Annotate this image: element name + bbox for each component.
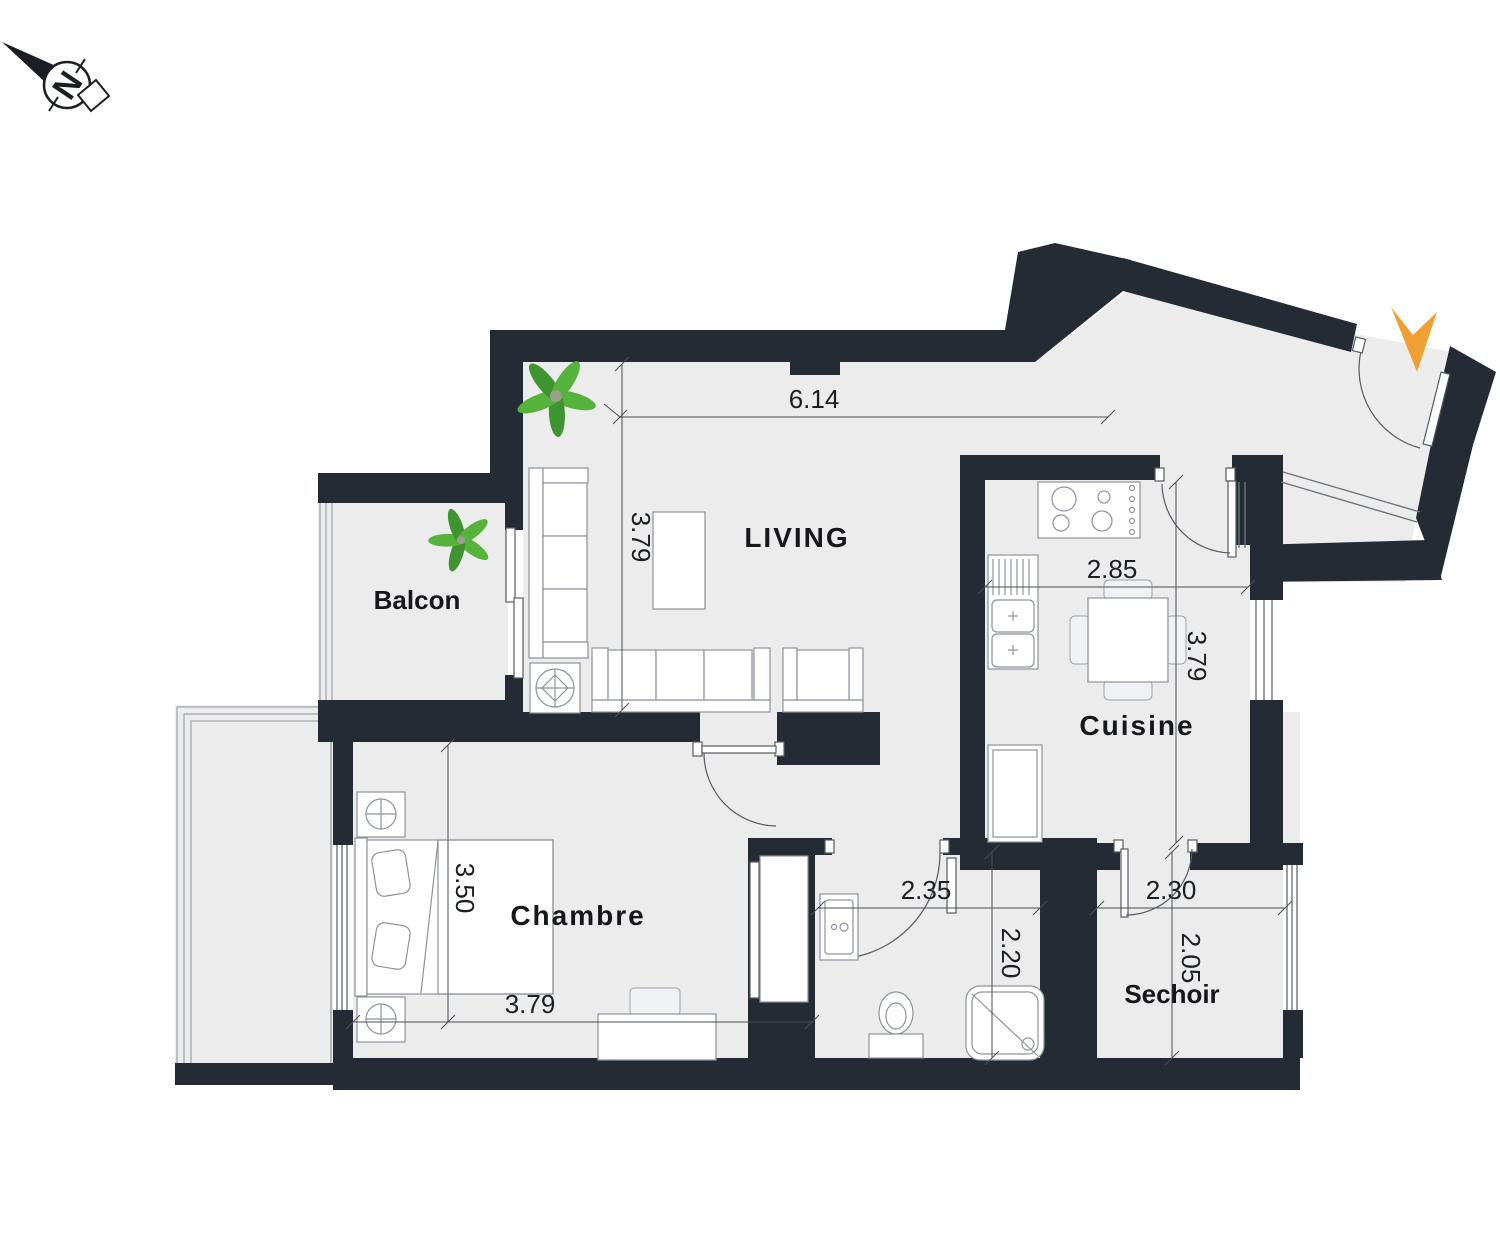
closet <box>750 856 808 1002</box>
wall-bottom <box>333 1058 1300 1090</box>
living-label: LIVING <box>744 522 849 553</box>
sofa-left <box>529 468 588 658</box>
shower <box>966 986 1044 1060</box>
balcon-label: Balcon <box>374 585 461 615</box>
stove <box>1038 482 1140 538</box>
balcon-sliding-door <box>506 528 523 678</box>
wall-bain-right <box>1040 855 1097 1058</box>
sechoir-right-window <box>1283 865 1303 1010</box>
floor-plan-page: 6.14 3.79 2.85 3.79 3.50 <box>0 0 1500 1258</box>
wall-living-bottom-b <box>777 712 880 765</box>
dim-bain-width-value: 2.35 <box>901 875 952 905</box>
wall-sechoir-right-b <box>1283 1010 1303 1058</box>
wall-kitchen-bottom-a <box>960 843 1120 870</box>
dim-cuisine-width-value: 2.85 <box>1087 554 1138 584</box>
cuisine-label: Cuisine <box>1079 710 1194 741</box>
north-compass: N <box>2 42 109 111</box>
kitchen-right-window <box>1250 600 1283 700</box>
side-table-lamp <box>530 663 580 713</box>
wall-kitchen-right-a <box>1250 545 1283 600</box>
terrace-floor <box>175 705 335 1085</box>
armchair <box>783 648 863 712</box>
wall-sechoir-right-a <box>1283 843 1303 865</box>
wall-chambre-west-b <box>333 1010 353 1063</box>
dim-living-depth-value: 3.79 <box>626 512 656 563</box>
bathroom-sink <box>820 894 858 960</box>
wall-kitchen-left <box>960 455 985 845</box>
wall-notch <box>790 362 840 375</box>
chambre-west-window <box>333 845 353 1010</box>
wall-chambre-west-a <box>333 742 353 845</box>
dim-bain-depth-value: 2.20 <box>996 928 1026 979</box>
wall-kitchen-top <box>985 455 1160 480</box>
dim-chambre-width-value: 3.79 <box>505 989 556 1019</box>
nightstand-lamp-bottom <box>357 997 405 1042</box>
dim-living-width-value: 6.14 <box>789 384 840 414</box>
wall-balcon-right-a <box>505 473 523 530</box>
wall-living-top <box>490 330 1005 362</box>
dining-table <box>1070 580 1186 700</box>
sechoir-label: Sechoir <box>1124 979 1219 1009</box>
dim-sechoir-width-value: 2.30 <box>1146 875 1197 905</box>
chambre-label: Chambre <box>510 900 645 931</box>
dim-cuisine-depth-value: 3.79 <box>1182 631 1212 682</box>
wall-terrace-bottom <box>175 1063 335 1085</box>
kitchen-sink <box>988 555 1038 669</box>
sofa-bottom <box>592 648 770 712</box>
coffee-table <box>653 512 705 609</box>
dim-chambre-depth-value: 3.50 <box>450 863 480 914</box>
floor-plan-drawing: 6.14 3.79 2.85 3.79 3.50 <box>0 0 1500 1258</box>
nightstand-lamp-top <box>357 792 405 837</box>
dim-sechoir-depth-value: 2.05 <box>1176 933 1206 984</box>
wall-living-bottom-a <box>490 712 700 742</box>
kitchen-duct <box>988 745 1042 842</box>
